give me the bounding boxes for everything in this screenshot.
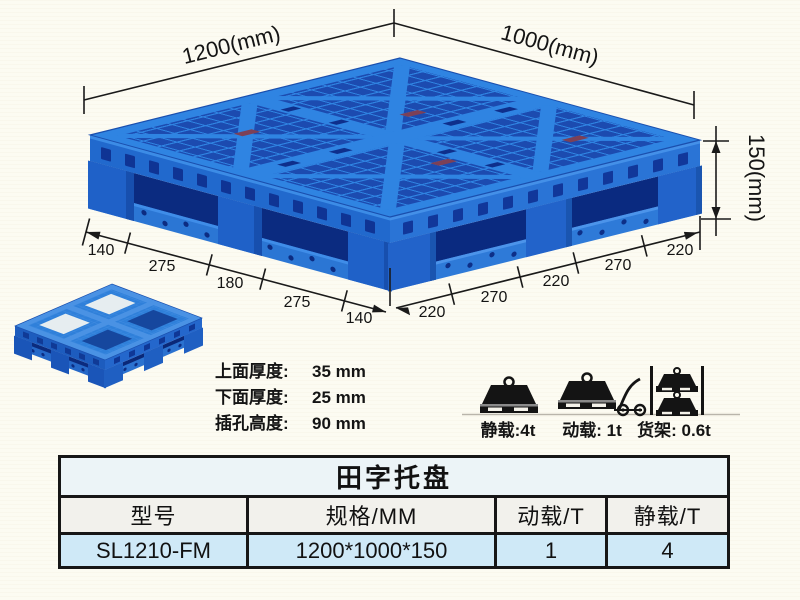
spec-value: 90 mm [312,414,366,433]
cell-static-load: 4 [607,534,729,568]
dimension-label: 220 [543,273,570,290]
dimension-label-height: 150(mm) [744,134,769,222]
cell-dynamic-load: 1 [496,534,607,568]
small-pallet-image [14,284,203,388]
cell-model: SL1210-FM [60,534,248,568]
static-load-icon [480,378,538,414]
rack-load-icon [650,366,704,416]
dimension-label: 270 [605,257,632,274]
product-spec-table: 田字托盘 型号 规格/MM 动载/T 静载/T SL1210-FM 1200*1… [58,455,730,569]
dimension-label: 140 [88,242,115,259]
thickness-specs: 上面厚度: 35 mm 下面厚度: 25 mm 插孔高度: 90 mm [215,361,366,433]
dimension-label-width: 1000(mm) [498,19,601,70]
dynamic-load-label: 动载: 1t [562,420,622,440]
spec-label: 上面厚度: [215,361,289,381]
spec-value: 35 mm [312,362,366,381]
dimension-line-150 [701,126,731,236]
rack-load-label: 货架: 0.6t [637,420,711,440]
header-model: 型号 [60,497,248,534]
cell-spec: 1200*1000*150 [248,534,496,568]
svg-text:上面厚度: 35 mm: 上面厚度: 35 mm [215,361,366,381]
dimension-label: 275 [149,258,176,275]
table-header-row: 型号 规格/MM 动载/T 静载/T [60,497,729,534]
dimension-label: 140 [346,310,373,327]
header-static-load: 静载/T [607,497,729,534]
spec-label: 下面厚度: [215,387,289,407]
dimension-label: 180 [217,275,244,292]
header-dynamic-load: 动载/T [496,497,607,534]
dimension-label: 220 [667,242,694,259]
table-title: 田字托盘 [60,457,729,497]
dimension-label: 270 [481,289,508,306]
dimension-label: 220 [419,304,446,321]
dimension-label: 275 [284,294,311,311]
dynamic-load-icon [558,374,645,416]
static-load-label: 静载:4t [481,420,536,440]
spec-label: 插孔高度: [215,413,289,433]
table-data-row: SL1210-FM 1200*1000*150 1 4 [60,534,729,568]
svg-text:下面厚度: 25 mm: 下面厚度: 25 mm [215,387,366,407]
load-rating-strip: 静载:4t 动载: 1t 货架: 0.6t [462,366,740,440]
dimension-label-length: 1200(mm) [180,21,283,69]
table-title-row: 田字托盘 [60,457,729,497]
header-spec: 规格/MM [248,497,496,534]
pallet-spec-sheet: 1200(mm) 1000(mm) 150(mm) [0,0,800,600]
spec-value: 25 mm [312,388,366,407]
svg-text:插孔高度: 90 mm: 插孔高度: 90 mm [215,413,366,433]
